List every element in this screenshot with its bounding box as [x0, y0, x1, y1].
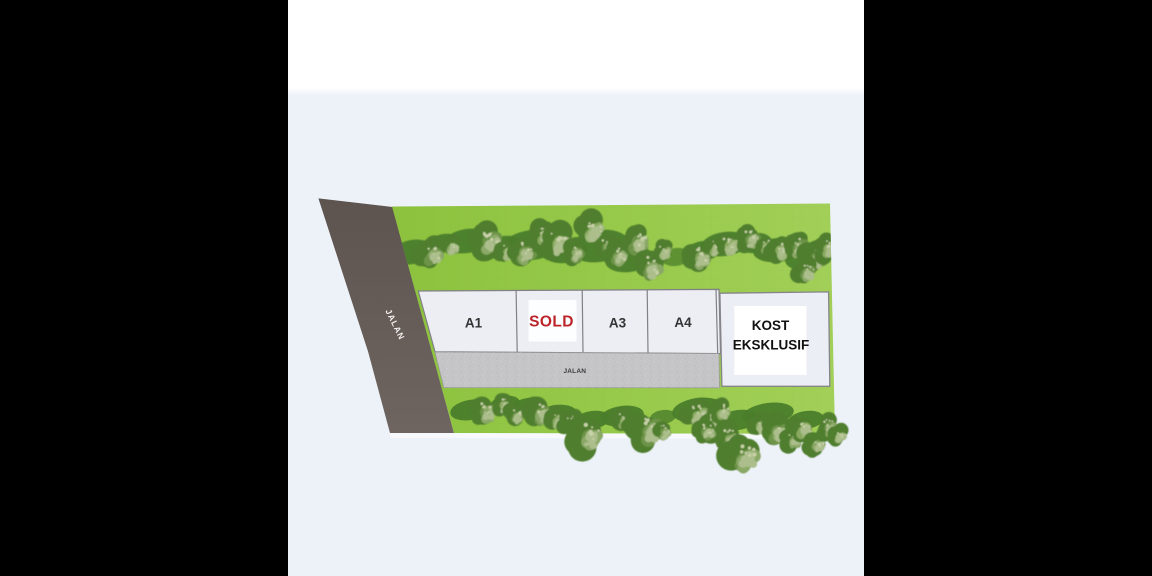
svg-text:KOST: KOST: [752, 318, 790, 333]
svg-text:A1: A1: [465, 316, 483, 331]
svg-text:EKSKLUSIF: EKSKLUSIF: [733, 338, 810, 353]
svg-text:A3: A3: [609, 316, 627, 331]
svg-text:JALAN: JALAN: [563, 368, 586, 375]
svg-text:SOLD: SOLD: [529, 314, 574, 331]
svg-text:A4: A4: [674, 315, 692, 330]
